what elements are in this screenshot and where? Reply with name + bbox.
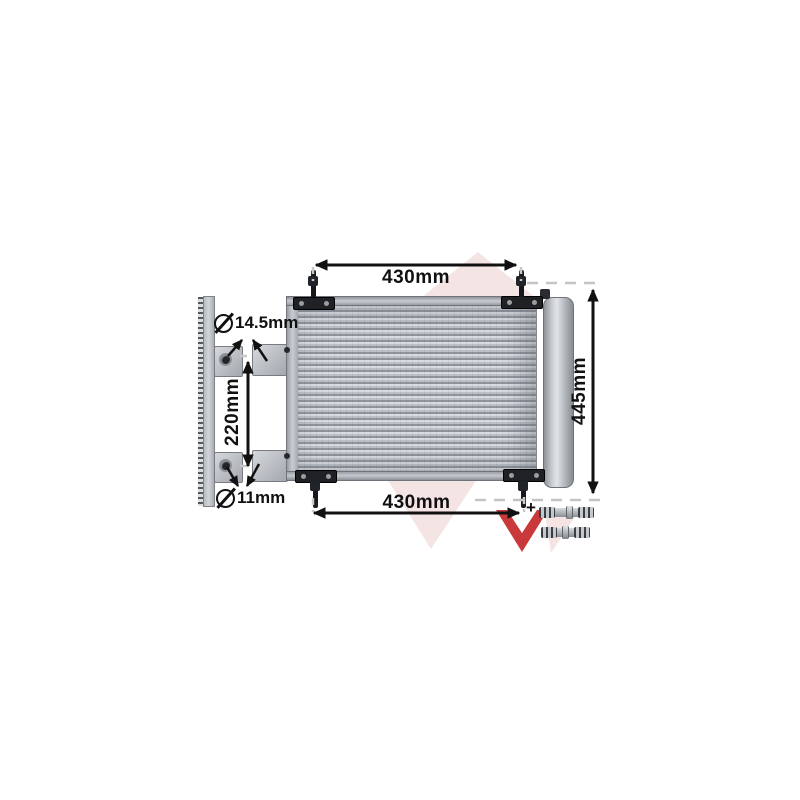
top-width-label: 430mm: [312, 267, 520, 289]
fitting-adapter-upper: [539, 506, 594, 519]
height-label: 445mm: [568, 351, 592, 431]
fitting-adapter-lower: [541, 526, 590, 539]
bracket-spacing-label: 220mm: [221, 372, 245, 452]
product-technical-image: 430mm 430mm 445mm 220mm 14.5mm 11mm +: [0, 0, 800, 800]
upper-hole-diameter-value: 14.5mm: [235, 313, 298, 333]
diameter-icon: [216, 489, 235, 508]
lower-hole-diameter-label: 11mm: [216, 488, 285, 508]
bottom-width-label: 430mm: [310, 492, 523, 514]
lower-hole-diameter-value: 11mm: [237, 488, 285, 508]
dashed-pin-guides: [240, 267, 524, 512]
dimension-lines: [0, 0, 800, 800]
plus-symbol: +: [526, 498, 536, 518]
diameter-icon: [214, 314, 233, 333]
upper-hole-diameter-label: 14.5mm: [214, 313, 298, 333]
